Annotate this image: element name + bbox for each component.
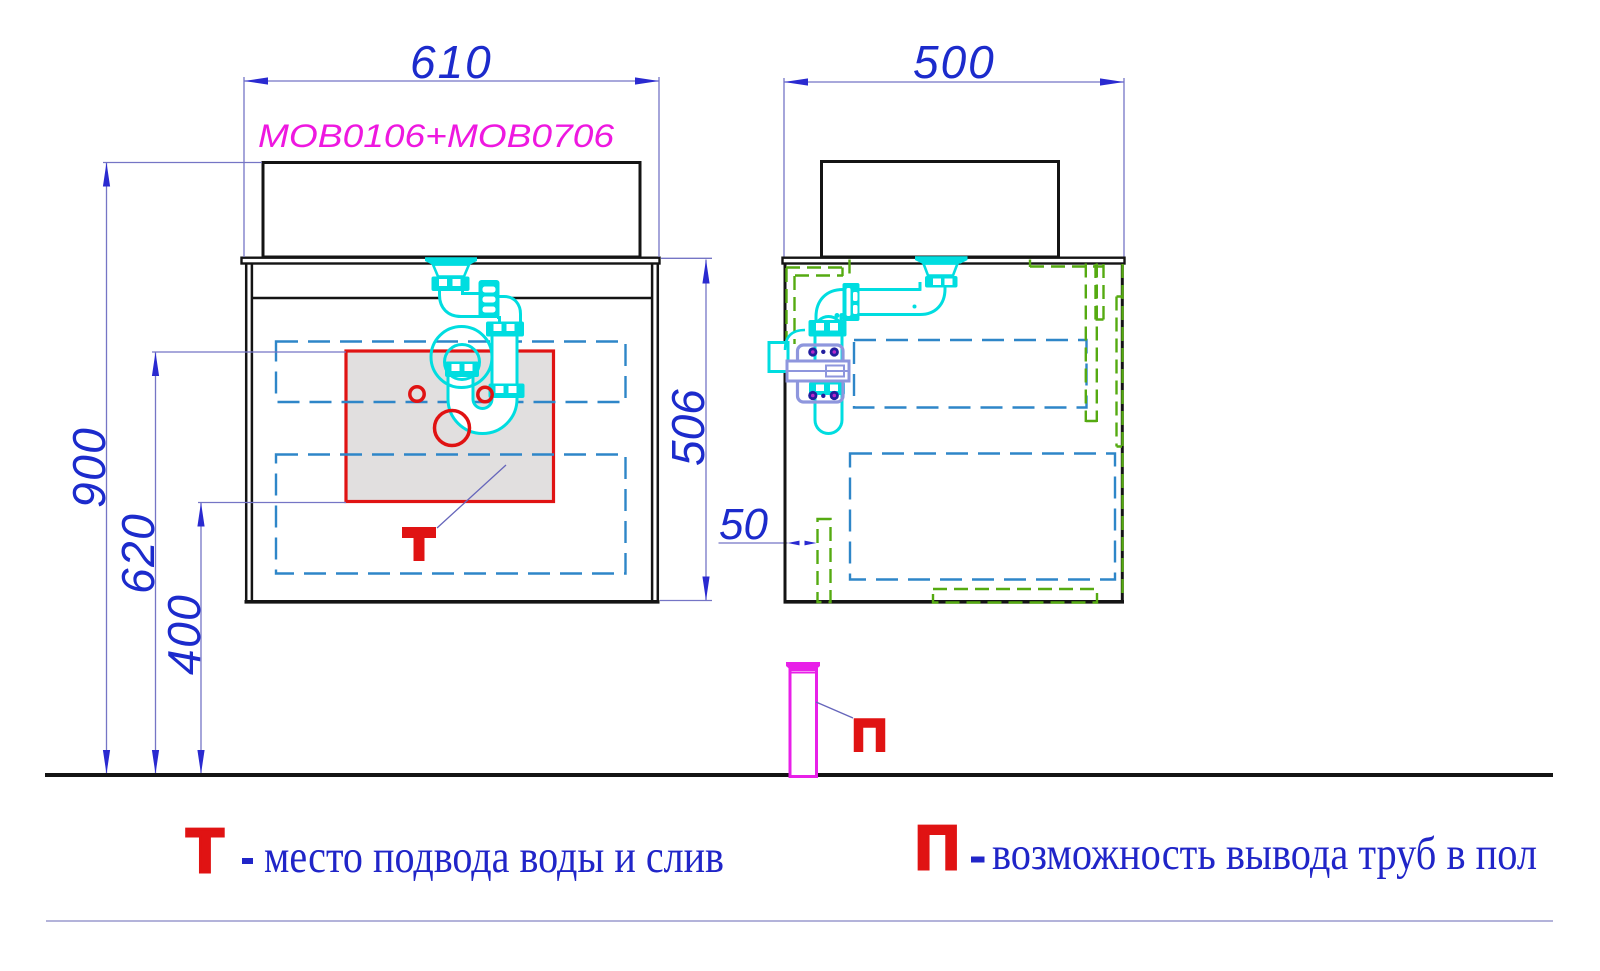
svg-text:400: 400 [158, 594, 210, 675]
svg-text:610: 610 [410, 36, 493, 88]
svg-text:620: 620 [112, 513, 164, 594]
svg-text:900: 900 [63, 427, 115, 508]
svg-text:MOB0106+MOB0706: MOB0106+MOB0706 [258, 118, 614, 154]
svg-text:П: П [915, 814, 960, 883]
svg-text:Т: Т [186, 817, 224, 886]
svg-text:50: 50 [719, 500, 768, 549]
svg-text:возможность вывода труб в пол: возможность вывода труб в пол [992, 828, 1537, 880]
svg-text:место подвода воды и слив: место подвода воды и слив [264, 831, 724, 883]
svg-text:500: 500 [913, 36, 996, 88]
svg-text:506: 506 [662, 389, 714, 466]
